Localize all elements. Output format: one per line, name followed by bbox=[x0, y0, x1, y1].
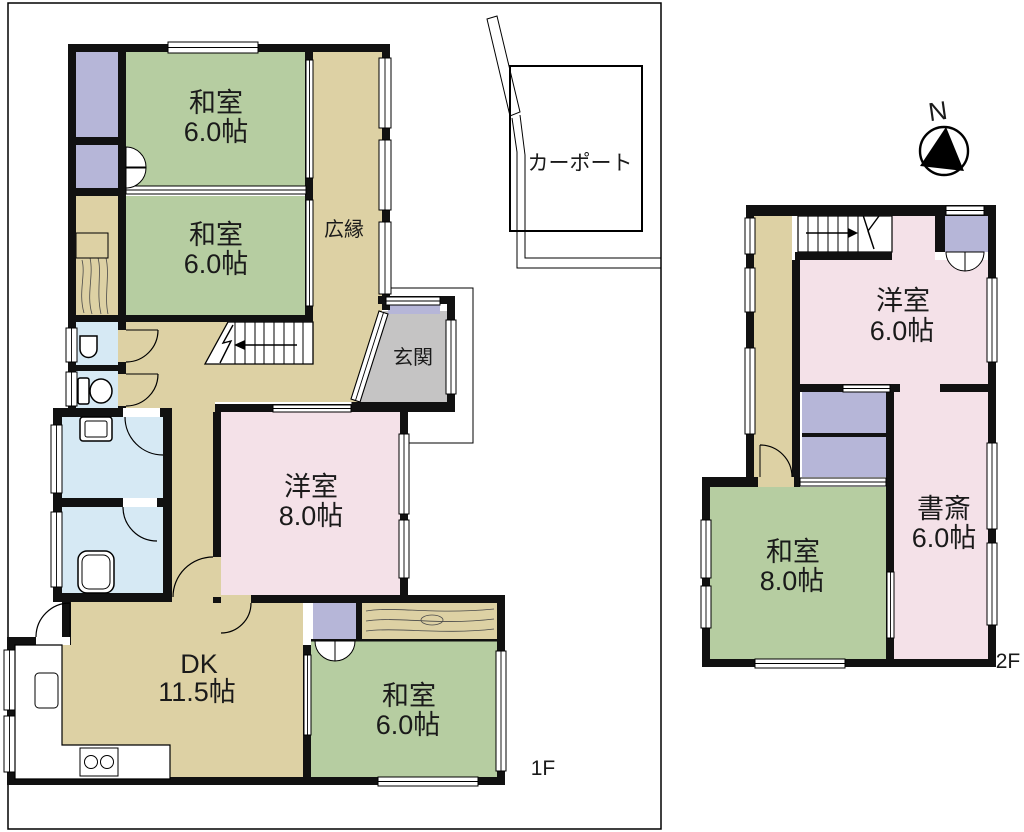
room-label: 和室 bbox=[382, 681, 436, 711]
room-size: 11.5帖 bbox=[158, 677, 236, 707]
room-size: 6.0帖 bbox=[184, 249, 249, 279]
carport-area: カーポート bbox=[510, 66, 642, 231]
carport-label: カーポート bbox=[528, 152, 633, 175]
room-yoshitsu-2f-strip bbox=[892, 216, 935, 260]
room-label: DK bbox=[180, 649, 218, 679]
closet-2f-top bbox=[945, 216, 988, 252]
room-label: 書斎 bbox=[917, 494, 971, 524]
room-size: 8.0帖 bbox=[760, 566, 825, 596]
room-label: 広縁 bbox=[324, 218, 364, 241]
room-label: 和室 bbox=[189, 88, 243, 118]
room-label: 洋室 bbox=[284, 472, 338, 502]
room-size: 6.0帖 bbox=[912, 523, 977, 553]
room-label: 洋室 bbox=[876, 286, 930, 316]
compass: N bbox=[920, 95, 968, 175]
closet-2f-a bbox=[802, 392, 886, 433]
hallway-2f bbox=[754, 216, 792, 478]
closet-2f-b bbox=[802, 437, 886, 477]
stairs-2f bbox=[798, 215, 892, 252]
room-hiroen bbox=[313, 52, 382, 322]
room-label: 玄関 bbox=[393, 346, 433, 369]
room-size: 6.0帖 bbox=[184, 117, 249, 147]
compass-label: N bbox=[926, 95, 949, 127]
room-size: 8.0帖 bbox=[279, 501, 344, 531]
closet-1f-b bbox=[76, 145, 118, 188]
room-label: 和室 bbox=[189, 220, 243, 250]
room-label: 和室 bbox=[766, 537, 820, 567]
room-size: 6.0帖 bbox=[870, 316, 935, 346]
closet-1f-a bbox=[76, 52, 118, 137]
hallway-1f-vert bbox=[172, 408, 213, 604]
tokonoma bbox=[76, 190, 118, 315]
urinal-icon bbox=[80, 336, 97, 358]
floorplan-drawing: カーポート N bbox=[0, 0, 1024, 832]
sink-icon bbox=[80, 417, 112, 441]
floor1-label: 1F bbox=[531, 757, 556, 780]
floor2-label: 2F bbox=[996, 650, 1021, 673]
oshiire-board bbox=[362, 603, 497, 641]
closet-1f-c bbox=[313, 600, 356, 641]
floor2-plan: 洋室 6.0帖 和室 8.0帖 書斎 6.0帖 2F bbox=[701, 205, 1020, 673]
floorplan-page: カーポート N bbox=[0, 0, 1024, 832]
room-size: 6.0帖 bbox=[376, 710, 441, 740]
toilet-icon bbox=[78, 378, 112, 404]
bathtub-icon bbox=[78, 551, 114, 593]
